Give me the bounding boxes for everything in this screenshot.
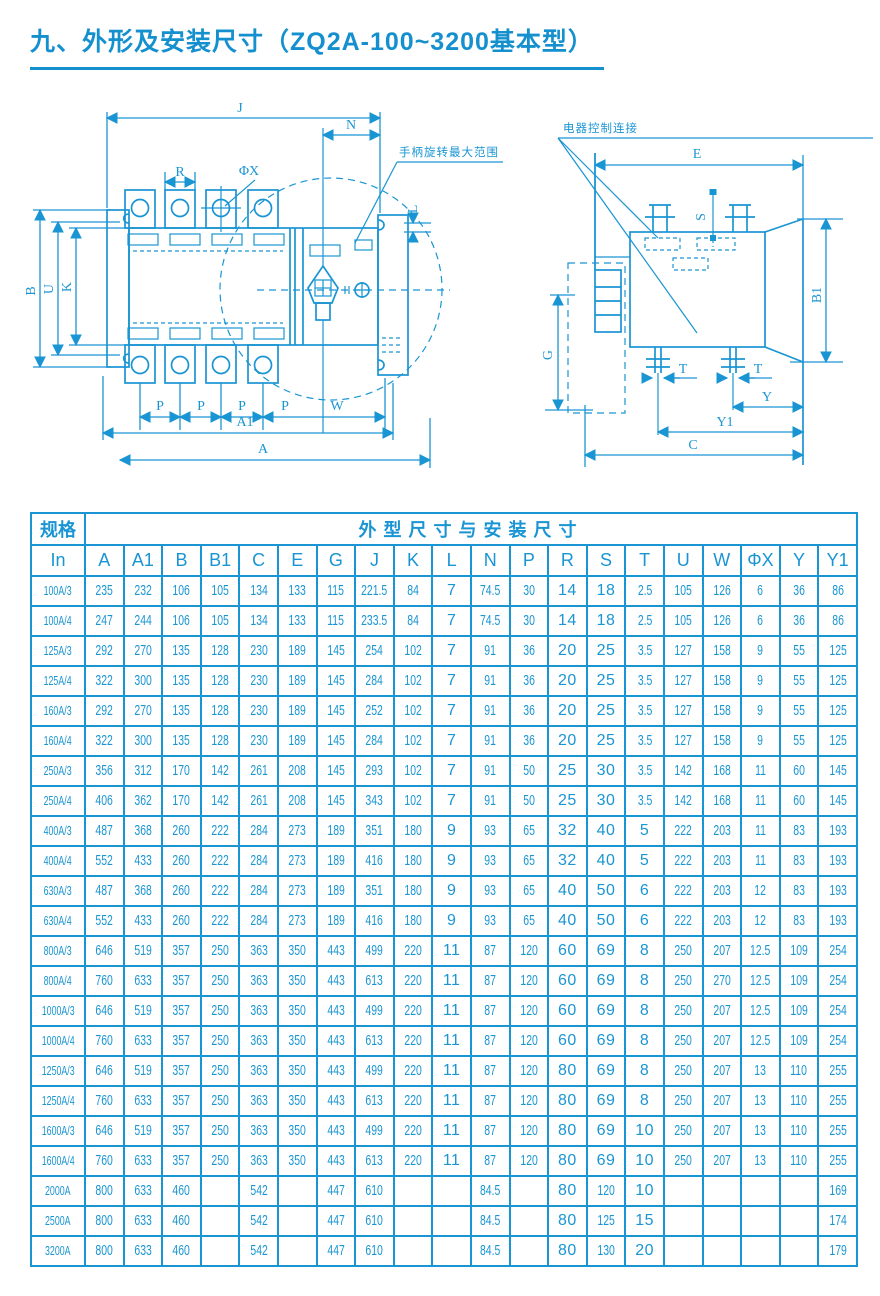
- dim-cell: 222: [211, 823, 228, 839]
- dim-cell: 447: [327, 1243, 344, 1259]
- dim-cell: 220: [404, 1033, 421, 1049]
- table-row: 250A/44063621701422612081453431027915025…: [31, 786, 857, 816]
- dim-cell: 25: [558, 792, 577, 810]
- dim-cell: 86: [832, 613, 844, 629]
- dim-cell: 6: [640, 882, 649, 900]
- dim-cell: 443: [327, 1093, 344, 1109]
- dim-cell: 499: [366, 943, 383, 959]
- dim-cell: 800: [96, 1213, 113, 1229]
- dim-cell: 633: [134, 1243, 151, 1259]
- dim-cell: 552: [96, 853, 113, 869]
- dim-cell: 7: [447, 582, 456, 600]
- dim-cell: 633: [134, 1153, 151, 1169]
- dim-cell: 20: [558, 732, 577, 750]
- dim-cell: 357: [173, 1063, 190, 1079]
- dim-cell: 87: [484, 1093, 496, 1109]
- dim-cell: 134: [250, 583, 267, 599]
- front-view-drawing: J N R ΦX 手柄旋转最大范围 B U K L P P P P W: [25, 88, 525, 493]
- dim-cell: 443: [327, 1063, 344, 1079]
- dim-cell: 25: [597, 702, 616, 720]
- dim-cell: 109: [790, 1003, 807, 1019]
- dim-cell: 351: [366, 823, 383, 839]
- dim-cell: 20: [558, 702, 577, 720]
- dim-cell: 273: [289, 913, 306, 929]
- dim-cell: 84: [407, 613, 419, 629]
- dim-cell: 207: [713, 1153, 730, 1169]
- dim-cell: 102: [404, 733, 421, 749]
- dim-cell: 120: [520, 943, 537, 959]
- dim-cell: 145: [327, 763, 344, 779]
- dim-cell: 255: [829, 1153, 846, 1169]
- dim-cell: 127: [674, 643, 691, 659]
- size-header: 外型尺寸与安装尺寸: [85, 513, 857, 545]
- dim-cell: 30: [597, 792, 616, 810]
- dim-cell: 519: [134, 1123, 151, 1139]
- dim-label-L: L: [406, 205, 421, 214]
- dim-cell: 368: [134, 883, 151, 899]
- dim-cell: 30: [597, 762, 616, 780]
- foot-bolts: [646, 347, 745, 373]
- dim-cell: 87: [484, 1003, 496, 1019]
- dim-cell: 357: [173, 973, 190, 989]
- dim-cell: 487: [96, 883, 113, 899]
- dim-cell: 233.5: [361, 613, 387, 629]
- spec-cell: 3200A: [45, 1243, 71, 1258]
- col-header-T: T: [625, 545, 664, 576]
- col-header-A: A: [85, 545, 124, 576]
- dim-cell: 30: [523, 613, 535, 629]
- dim-cell: 189: [289, 733, 306, 749]
- dim-cell: 80: [558, 1182, 577, 1200]
- dim-cell: 60: [558, 942, 577, 960]
- dim-cell: 11: [443, 1032, 461, 1050]
- dim-cell: 36: [523, 673, 535, 689]
- dim-cell: 244: [134, 613, 151, 629]
- spec-cell: 1000A/4: [42, 1033, 75, 1048]
- dim-cell: 40: [597, 822, 616, 840]
- dim-cell: 6: [757, 613, 763, 629]
- dim-cell: 60: [793, 763, 805, 779]
- dim-cell: 110: [791, 1153, 808, 1169]
- dim-cell: 106: [173, 613, 190, 629]
- dim-cell: 519: [134, 1003, 151, 1019]
- top-slots: [128, 234, 284, 245]
- dim-cell: 9: [757, 703, 763, 719]
- dim-cell: 110: [791, 1093, 808, 1109]
- dim-cell: 7: [447, 702, 456, 720]
- dim-cell: 300: [134, 673, 151, 689]
- dim-cell: 255: [829, 1063, 846, 1079]
- dim-cell: 168: [713, 793, 730, 809]
- dim-cell: 646: [96, 1123, 113, 1139]
- col-header-C: C: [239, 545, 278, 576]
- dim-cell: 84: [407, 583, 419, 599]
- dim-cell: 260: [173, 913, 190, 929]
- dim-cell: 193: [829, 823, 846, 839]
- dim-cell: 158: [713, 673, 730, 689]
- control-connection-note: 电器控制连接: [563, 121, 638, 135]
- dim-cell: 9: [447, 912, 456, 930]
- dim-cell: 300: [134, 733, 151, 749]
- dim-cell: 120: [520, 973, 537, 989]
- dim-cell: 145: [327, 703, 344, 719]
- dim-cell: 363: [250, 1093, 267, 1109]
- dim-cell: 260: [173, 853, 190, 869]
- dim-cell: 416: [366, 853, 383, 869]
- dim-cell: 447: [327, 1213, 344, 1229]
- dim-cell: 91: [484, 793, 496, 809]
- dim-cell: 69: [597, 972, 616, 990]
- dim-cell: 120: [520, 1033, 537, 1049]
- dim-cell: 142: [674, 763, 691, 779]
- dim-cell: 230: [250, 703, 267, 719]
- col-header-K: K: [394, 545, 433, 576]
- dim-cell: 3.5: [637, 673, 652, 689]
- dim-cell: 115: [328, 583, 345, 599]
- col-header-E: E: [278, 545, 317, 576]
- dim-cell: 158: [713, 703, 730, 719]
- dim-cell: 9: [757, 643, 763, 659]
- dim-cell: 120: [520, 1093, 537, 1109]
- dim-cell: 168: [713, 763, 730, 779]
- dim-label-B1: B1: [810, 287, 825, 303]
- dim-cell: 40: [558, 912, 577, 930]
- dim-cell: 250: [211, 1123, 228, 1139]
- dim-cell: 254: [829, 1003, 846, 1019]
- dim-cell: 120: [597, 1183, 614, 1199]
- dim-cell: 343: [366, 793, 383, 809]
- dim-cell: 322: [96, 673, 113, 689]
- dim-cell: 25: [597, 672, 616, 690]
- dim-cell: 18: [597, 582, 616, 600]
- dim-label-W: W: [330, 399, 344, 414]
- dim-cell: 220: [404, 973, 421, 989]
- table-row: 1250A/3646519357250363350443499220118712…: [31, 1056, 857, 1086]
- dim-cell: 2.5: [637, 613, 652, 629]
- dim-cell: 222: [211, 883, 228, 899]
- dim-cell: 130: [597, 1243, 614, 1259]
- dim-cell: 9: [757, 733, 763, 749]
- dim-cell: 363: [250, 1123, 267, 1139]
- dim-cell: 189: [327, 823, 344, 839]
- spec-cell: 2500A: [45, 1213, 71, 1228]
- dim-cell: 11: [443, 1062, 461, 1080]
- dim-cell: 91: [484, 703, 496, 719]
- dim-label-P2: P: [197, 399, 205, 414]
- col-header-Y: Y: [780, 545, 819, 576]
- dim-cell: 32: [558, 852, 577, 870]
- dim-cell: 12: [755, 883, 767, 899]
- dim-cell: 91: [484, 673, 496, 689]
- dim-cell: 760: [96, 973, 113, 989]
- dim-cell: 145: [327, 643, 344, 659]
- dim-cell: 284: [250, 883, 267, 899]
- dim-cell: 250: [211, 973, 228, 989]
- spec-cell: 400A/3: [44, 823, 72, 838]
- dim-cell: 250: [674, 1093, 691, 1109]
- dim-cell: 13: [755, 1063, 767, 1079]
- dim-cell: 60: [558, 1002, 577, 1020]
- dim-label-T2: T: [754, 362, 763, 377]
- dim-cell: 646: [96, 943, 113, 959]
- dim-cell: 499: [366, 1123, 383, 1139]
- dim-cell: 760: [96, 1153, 113, 1169]
- dim-cell: 220: [404, 943, 421, 959]
- table-row: 3200A80063346054244761084.58013020179: [31, 1236, 857, 1266]
- dim-cell: 350: [289, 1123, 306, 1139]
- dim-cell: 110: [791, 1123, 808, 1139]
- dim-cell: 7: [447, 672, 456, 690]
- dim-cell: 250: [211, 1093, 228, 1109]
- dim-cell: 646: [96, 1063, 113, 1079]
- dim-cell: 83: [793, 883, 805, 899]
- dim-cell: 14: [558, 582, 577, 600]
- dim-cell: 36: [793, 613, 805, 629]
- dim-cell: 180: [404, 913, 421, 929]
- table-row: 2500A80063346054244761084.58012515174: [31, 1206, 857, 1236]
- dim-cell: 230: [250, 673, 267, 689]
- dim-cell: 499: [366, 1063, 383, 1079]
- dim-cell: 10: [635, 1122, 654, 1140]
- dim-cell: 25: [597, 732, 616, 750]
- dim-cell: 357: [173, 943, 190, 959]
- dim-cell: 102: [404, 673, 421, 689]
- table-row: 1000A/4760633357250363350443613220118712…: [31, 1026, 857, 1056]
- dim-cell: 193: [829, 853, 846, 869]
- dim-cell: 30: [523, 583, 535, 599]
- dim-cell: 110: [791, 1063, 808, 1079]
- dim-cell: 447: [327, 1183, 344, 1199]
- dim-cell: 11: [443, 1152, 461, 1170]
- dim-cell: 260: [173, 823, 190, 839]
- dim-cell: 87: [484, 1153, 496, 1169]
- dim-cell: 69: [597, 1062, 616, 1080]
- dim-cell: 613: [366, 973, 383, 989]
- dim-cell: 3.5: [637, 643, 652, 659]
- dim-cell: 65: [523, 823, 535, 839]
- dim-cell: 83: [793, 853, 805, 869]
- dim-cell: 65: [523, 883, 535, 899]
- dim-cell: 36: [793, 583, 805, 599]
- dim-cell: 222: [674, 883, 691, 899]
- col-header-A1: A1: [124, 545, 163, 576]
- col-header-S: S: [587, 545, 626, 576]
- dim-cell: 127: [674, 733, 691, 749]
- dim-cell: 36: [523, 733, 535, 749]
- dim-cell: 180: [404, 883, 421, 899]
- dim-cell: 3.5: [637, 733, 652, 749]
- dim-cell: 105: [211, 583, 228, 599]
- dim-cell: 207: [713, 1003, 730, 1019]
- dim-label-phiX: ΦX: [239, 164, 259, 179]
- spec-header: 规格: [31, 513, 85, 545]
- dim-cell: 460: [173, 1243, 190, 1259]
- dim-cell: 50: [597, 882, 616, 900]
- table-row: 250A/33563121701422612081452931027915025…: [31, 756, 857, 786]
- dim-label-P1: P: [156, 399, 164, 414]
- dim-cell: 145: [829, 763, 846, 779]
- dim-cell: 613: [366, 1093, 383, 1109]
- dim-cell: 93: [484, 853, 496, 869]
- table-row: 800A/36465193572503633504434992201187120…: [31, 936, 857, 966]
- dim-cell: 222: [211, 853, 228, 869]
- col-header-N: N: [471, 545, 510, 576]
- dimensions-table: 规格 外型尺寸与安装尺寸 InAA1BB1CEGJKLNPRSTUWΦXYY1 …: [30, 512, 858, 1267]
- dim-cell: 252: [366, 703, 383, 719]
- dim-cell: 633: [134, 1213, 151, 1229]
- table-row: 125A/43223001351282301891452841027913620…: [31, 666, 857, 696]
- dim-cell: 120: [520, 1003, 537, 1019]
- dim-cell: 55: [793, 703, 805, 719]
- dim-cell: 158: [713, 643, 730, 659]
- dim-cell: 134: [250, 613, 267, 629]
- dim-label-U: U: [42, 284, 57, 294]
- dim-cell: 189: [327, 853, 344, 869]
- dim-cell: 133: [289, 613, 306, 629]
- col-header-ΦX: ΦX: [741, 545, 780, 576]
- dim-label-E: E: [693, 147, 702, 162]
- dim-cell: 142: [674, 793, 691, 809]
- spec-cell: 250A/3: [44, 763, 72, 778]
- dim-cell: 633: [134, 1093, 151, 1109]
- dim-cell: 15: [635, 1212, 654, 1230]
- dim-cell: 80: [558, 1152, 577, 1170]
- dim-cell: 760: [96, 1033, 113, 1049]
- dim-cell: 189: [327, 913, 344, 929]
- dim-cell: 800: [96, 1243, 113, 1259]
- spec-cell: 630A/4: [44, 913, 72, 928]
- dim-cell: 179: [829, 1243, 846, 1259]
- dim-cell: 69: [597, 1152, 616, 1170]
- dim-cell: 105: [211, 613, 228, 629]
- dim-cell: 145: [829, 793, 846, 809]
- dim-cell: 91: [484, 763, 496, 779]
- table-row: 160A/43223001351282301891452841027913620…: [31, 726, 857, 756]
- dim-cell: 69: [597, 942, 616, 960]
- dim-cell: 25: [597, 642, 616, 660]
- table-row: 1600A/4760633357250363350443613220118712…: [31, 1146, 857, 1176]
- dim-cell: 120: [520, 1123, 537, 1139]
- dim-cell: 25: [558, 762, 577, 780]
- col-header-W: W: [703, 545, 742, 576]
- dim-cell: 235: [96, 583, 113, 599]
- spec-cell: 2000A: [45, 1183, 71, 1198]
- dim-cell: 273: [289, 823, 306, 839]
- dim-cell: 127: [674, 703, 691, 719]
- dim-cell: 499: [366, 1003, 383, 1019]
- col-header-U: U: [664, 545, 703, 576]
- dim-cell: 11: [443, 1002, 461, 1020]
- dim-cell: 207: [713, 1033, 730, 1049]
- dim-cell: 222: [674, 913, 691, 929]
- dim-cell: 9: [447, 822, 456, 840]
- dim-cell: 65: [523, 853, 535, 869]
- dim-cell: 363: [250, 1153, 267, 1169]
- dim-cell: 125: [829, 643, 846, 659]
- dim-cell: 250: [211, 1063, 228, 1079]
- dim-cell: 222: [211, 913, 228, 929]
- dim-cell: 9: [447, 852, 456, 870]
- dim-cell: 254: [829, 943, 846, 959]
- dim-cell: 261: [250, 793, 267, 809]
- dim-cell: 11: [443, 972, 461, 990]
- dim-label-J: J: [237, 101, 243, 116]
- dim-cell: 284: [366, 733, 383, 749]
- dim-cell: 11: [443, 942, 461, 960]
- dim-cell: 760: [96, 1093, 113, 1109]
- dim-cell: 135: [173, 643, 190, 659]
- dim-cell: 270: [134, 703, 151, 719]
- table-row: 125A/32922701351282301891452541027913620…: [31, 636, 857, 666]
- spec-cell: 800A/4: [44, 973, 72, 988]
- dim-cell: 519: [134, 1063, 151, 1079]
- dim-label-Y1: Y1: [716, 415, 733, 430]
- dim-cell: 322: [96, 733, 113, 749]
- dim-cell: 80: [558, 1092, 577, 1110]
- dim-label-P4: P: [281, 399, 289, 414]
- dim-cell: 169: [829, 1183, 846, 1199]
- dim-cell: 207: [713, 1123, 730, 1139]
- dim-cell: 11: [755, 823, 766, 839]
- dim-cell: 357: [173, 1093, 190, 1109]
- dim-cell: 36: [523, 703, 535, 719]
- dim-cell: 519: [134, 943, 151, 959]
- dim-cell: 368: [134, 823, 151, 839]
- spec-cell: 1600A/3: [42, 1123, 75, 1138]
- dim-cell: 80: [558, 1062, 577, 1080]
- dim-cell: 443: [327, 1153, 344, 1169]
- dim-cell: 174: [829, 1213, 846, 1229]
- dim-cell: 109: [790, 943, 807, 959]
- dim-cell: 350: [289, 1093, 306, 1109]
- dim-cell: 120: [520, 1063, 537, 1079]
- dim-cell: 84.5: [480, 1243, 500, 1259]
- table-row: 400A/45524332602222842731894161809936532…: [31, 846, 857, 876]
- dim-cell: 250: [674, 1153, 691, 1169]
- dim-cell: 50: [523, 793, 535, 809]
- dim-cell: 55: [793, 673, 805, 689]
- dim-cell: 105: [674, 613, 691, 629]
- dim-cell: 220: [404, 1063, 421, 1079]
- table-row: 630A/34873682602222842731893511809936540…: [31, 876, 857, 906]
- dim-cell: 133: [289, 583, 306, 599]
- dim-cell: 11: [755, 853, 766, 869]
- dim-cell: 363: [250, 943, 267, 959]
- dim-cell: 293: [366, 763, 383, 779]
- table-row: 1600A/3646519357250363350443499220118712…: [31, 1116, 857, 1146]
- dim-cell: 12.5: [750, 973, 770, 989]
- dim-cell: 84.5: [480, 1183, 500, 1199]
- dim-cell: 10: [635, 1152, 654, 1170]
- dim-cell: 93: [484, 883, 496, 899]
- dim-cell: 74.5: [480, 613, 500, 629]
- dim-cell: 273: [289, 853, 306, 869]
- dim-cell: 610: [366, 1213, 383, 1229]
- col-header-J: J: [355, 545, 394, 576]
- dim-cell: 357: [173, 1033, 190, 1049]
- dim-cell: 261: [250, 763, 267, 779]
- dim-cell: 84.5: [480, 1213, 500, 1229]
- dim-label-Y: Y: [762, 390, 772, 405]
- dim-cell: 350: [289, 1153, 306, 1169]
- dim-cell: 11: [755, 793, 766, 809]
- col-header-L: L: [432, 545, 471, 576]
- dim-cell: 208: [289, 793, 306, 809]
- dim-cell: 800: [96, 1183, 113, 1199]
- dim-cell: 250: [674, 973, 691, 989]
- dim-cell: 13: [755, 1153, 767, 1169]
- spec-cell: 1600A/4: [42, 1153, 75, 1168]
